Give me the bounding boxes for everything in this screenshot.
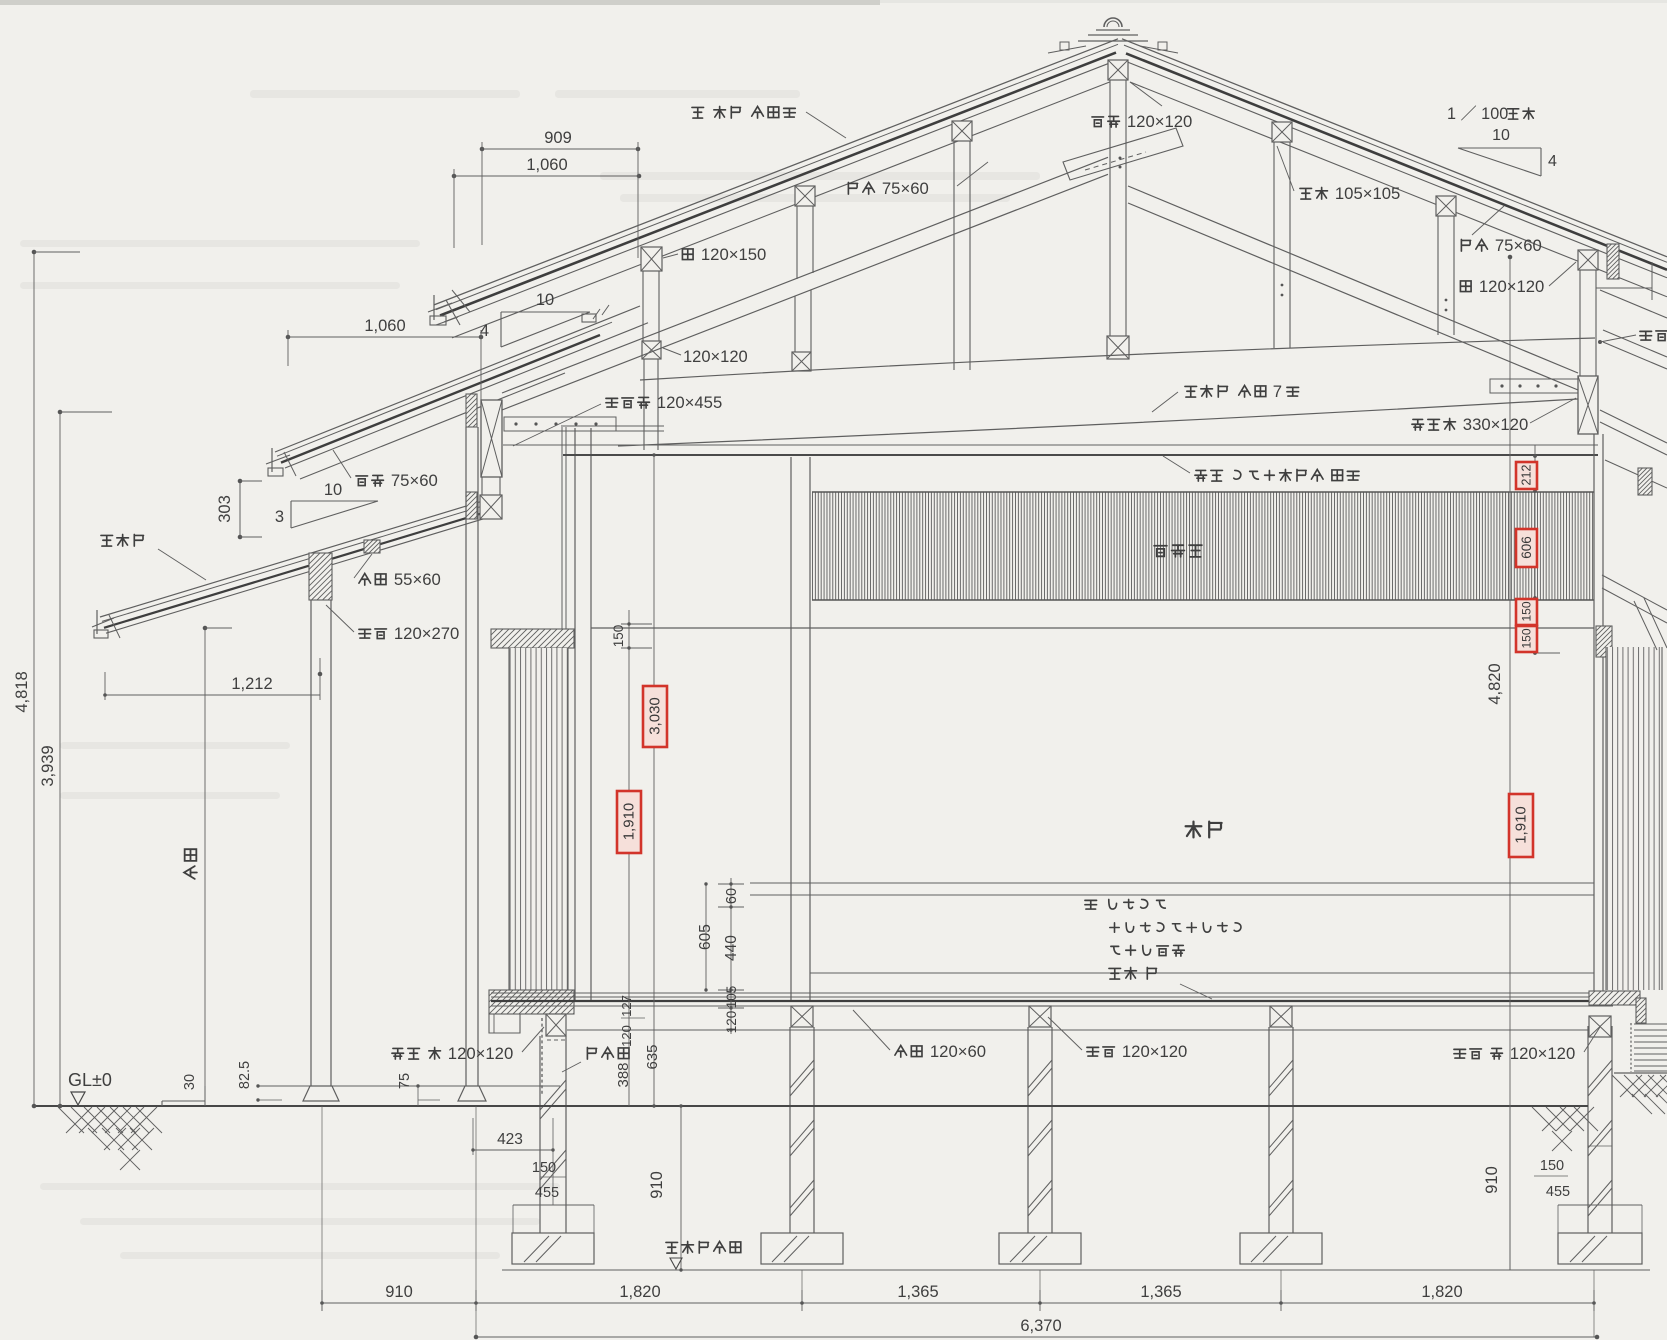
svg-text:635: 635 — [644, 1044, 661, 1069]
svg-text:120×120: 120×120 — [1122, 1042, 1187, 1061]
svg-text:910: 910 — [648, 1171, 666, 1199]
svg-text:120×120: 120×120 — [1479, 277, 1544, 296]
svg-text:6,370: 6,370 — [1020, 1317, 1061, 1335]
svg-text:75×60: 75×60 — [1495, 236, 1542, 255]
svg-text:10: 10 — [324, 481, 342, 499]
svg-text:127: 127 — [619, 995, 634, 1017]
svg-text:606: 606 — [1519, 536, 1534, 559]
svg-text:1,820: 1,820 — [1421, 1283, 1462, 1301]
svg-text:303: 303 — [216, 495, 234, 523]
svg-text:1,910: 1,910 — [621, 803, 638, 841]
svg-text:1 ／ 100: 1 ／ 100 — [1447, 105, 1508, 123]
svg-text:150: 150 — [1540, 1158, 1564, 1174]
svg-text:60: 60 — [724, 888, 740, 904]
svg-text:55×60: 55×60 — [394, 570, 441, 589]
svg-text:120: 120 — [724, 1011, 739, 1034]
svg-text:75×60: 75×60 — [882, 179, 929, 198]
svg-text:212: 212 — [1520, 465, 1534, 486]
svg-text:1,365: 1,365 — [897, 1283, 938, 1301]
svg-text:105: 105 — [724, 986, 739, 1009]
svg-text:150: 150 — [1520, 628, 1534, 648]
svg-text:909: 909 — [544, 129, 572, 147]
svg-text:388: 388 — [615, 1062, 632, 1087]
svg-text:1,060: 1,060 — [526, 156, 567, 174]
svg-text:1,910: 1,910 — [1513, 806, 1530, 844]
svg-text:1,212: 1,212 — [231, 675, 272, 693]
svg-text:455: 455 — [1546, 1184, 1570, 1200]
svg-text:82.5: 82.5 — [237, 1061, 253, 1089]
svg-text:150: 150 — [532, 1160, 556, 1176]
svg-text:10: 10 — [1492, 127, 1510, 144]
svg-text:120×60: 120×60 — [930, 1042, 986, 1061]
svg-text:105×105: 105×105 — [1335, 184, 1400, 203]
svg-text:4,818: 4,818 — [13, 671, 31, 712]
svg-text:120×120: 120×120 — [683, 348, 748, 366]
svg-text:3: 3 — [275, 508, 284, 526]
svg-text:10: 10 — [536, 291, 554, 309]
svg-text:1,820: 1,820 — [619, 1283, 660, 1301]
svg-text:330×120: 330×120 — [1463, 415, 1528, 434]
svg-text:75: 75 — [397, 1073, 413, 1089]
svg-text:75×60: 75×60 — [391, 471, 438, 490]
svg-text:120: 120 — [619, 1025, 634, 1047]
svg-text:910: 910 — [385, 1283, 413, 1301]
svg-text:120×455: 120×455 — [657, 393, 722, 412]
svg-text:910: 910 — [1483, 1166, 1501, 1194]
svg-text:120×150: 120×150 — [701, 245, 766, 264]
svg-text:30: 30 — [182, 1074, 198, 1090]
svg-text:1,060: 1,060 — [364, 317, 405, 335]
svg-text:3,939: 3,939 — [39, 745, 57, 786]
svg-text:120×120: 120×120 — [1127, 112, 1192, 131]
svg-text:455: 455 — [535, 1185, 559, 1201]
svg-text:150: 150 — [611, 625, 626, 648]
svg-text:440: 440 — [723, 935, 740, 961]
svg-text:150: 150 — [1520, 601, 1534, 621]
svg-text:423: 423 — [497, 1131, 523, 1148]
svg-text:120×120: 120×120 — [1510, 1044, 1575, 1063]
svg-text:4: 4 — [1548, 153, 1557, 170]
svg-text:GL±0: GL±0 — [68, 1070, 112, 1090]
svg-text:120×120: 120×120 — [448, 1044, 513, 1063]
svg-text:605: 605 — [697, 924, 714, 950]
svg-text:120×270: 120×270 — [394, 624, 459, 643]
svg-text:1,365: 1,365 — [1140, 1283, 1181, 1301]
svg-text:4,820: 4,820 — [1486, 663, 1504, 704]
svg-text:3,030: 3,030 — [647, 697, 664, 735]
svg-text:7: 7 — [1273, 382, 1282, 401]
